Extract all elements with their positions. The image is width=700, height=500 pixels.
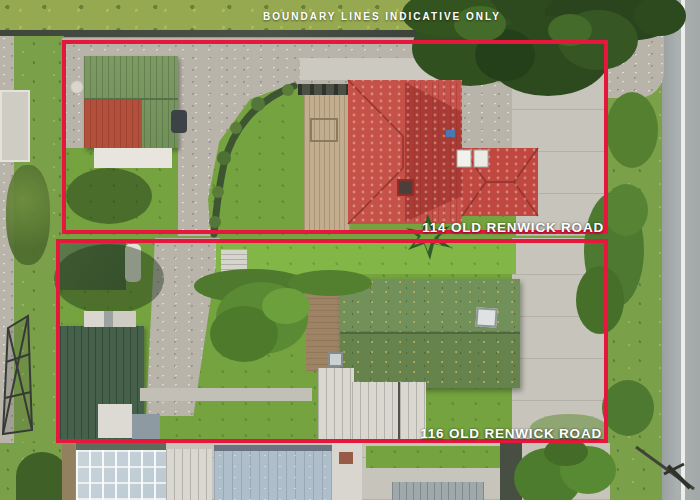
- transmission-tower: [3, 316, 32, 434]
- parcel-114-label: 114 OLD RENWICK ROAD: [422, 220, 604, 235]
- disclaimer-text: BOUNDARY LINES INDICATIVE ONLY: [62, 11, 700, 22]
- aerial-photo: BOUNDARY LINES INDICATIVE ONLY 114 OLD R…: [0, 0, 700, 500]
- boundary-114: [62, 40, 608, 234]
- power-pole: [636, 447, 694, 489]
- parcel-116-label: 116 OLD RENWICK ROAD: [420, 426, 602, 441]
- trees-bottom-right: [514, 438, 616, 500]
- boundary-116: [56, 239, 608, 443]
